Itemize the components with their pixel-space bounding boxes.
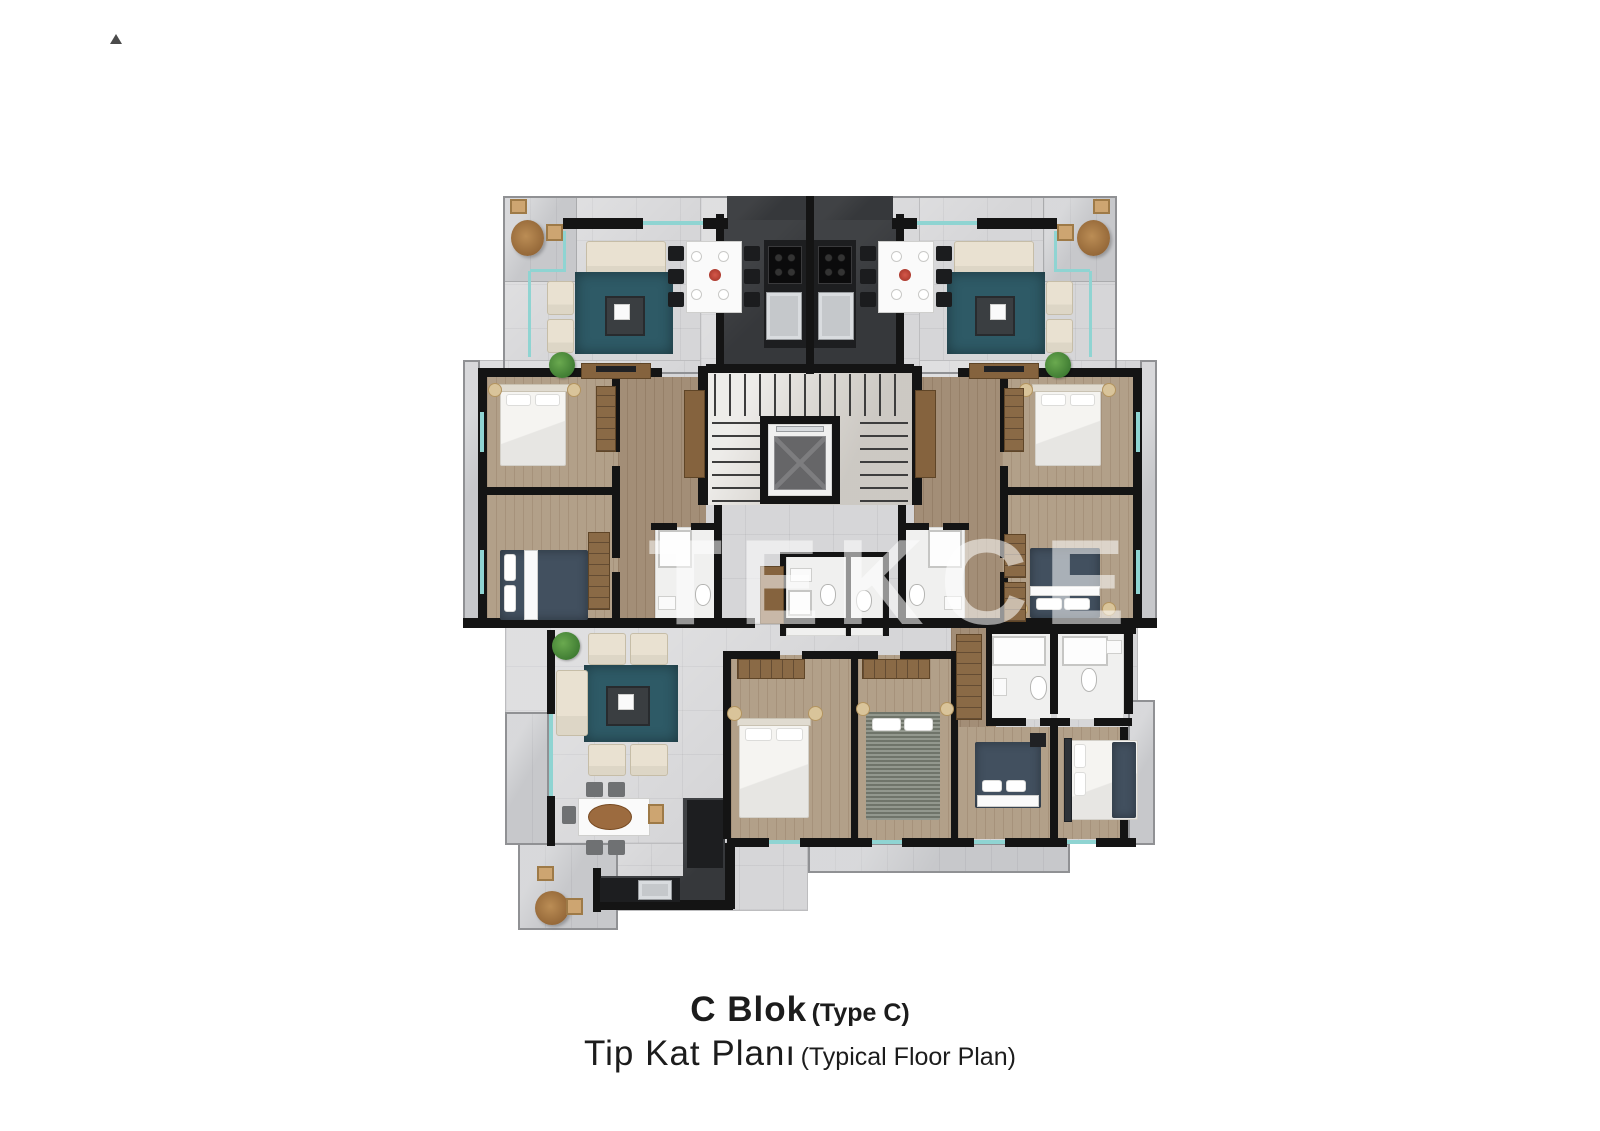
caption-line-2: Tip Kat Planı (Typical Floor Plan) <box>0 1035 1600 1079</box>
wall-bath-bottom-top <box>986 626 1136 634</box>
tv-bedroom-c1 <box>1030 733 1046 747</box>
plant-right <box>1045 352 1071 378</box>
nightstand-b1r-2 <box>1102 383 1116 397</box>
plate-l4 <box>718 289 729 300</box>
pillow-ba-1 <box>745 728 772 741</box>
wardrobe-bedroom2-left <box>588 532 610 610</box>
wall-cbath-mid <box>846 552 851 636</box>
plate-l2 <box>718 251 729 262</box>
dining-chair-l4 <box>744 246 760 261</box>
wall-bed-bottom-1 <box>727 838 769 847</box>
toilet-center-1 <box>820 584 836 606</box>
entry-door-left <box>684 390 705 478</box>
toilet-center-2 <box>856 590 872 612</box>
wardrobe-bedroom1-left <box>596 386 616 452</box>
wall-cbath-right <box>883 552 889 636</box>
window-east-1 <box>1136 412 1140 452</box>
window-west-1 <box>480 412 484 452</box>
terrace-chair-l2 <box>546 224 563 241</box>
nightstand-b1l-2 <box>567 383 581 397</box>
armchair-right-1 <box>1046 281 1073 315</box>
dining-chair-b3 <box>586 840 603 855</box>
sofa-bottom-left <box>556 670 588 736</box>
caption: C Blok (Type C) Tip Kat Planı (Typical F… <box>0 991 1600 1079</box>
armchair-b2 <box>630 633 668 665</box>
toilet-bottom2 <box>1081 668 1097 692</box>
dining-table-bottom-top <box>588 804 632 830</box>
window-bed-c2 <box>1067 840 1096 844</box>
terrace-chair-r2 <box>1057 224 1074 241</box>
centerpiece-left <box>709 269 721 281</box>
wardrobe-bedroom-b <box>862 659 930 679</box>
wall-bed-c-split <box>1050 724 1058 840</box>
parapet-bottom-band <box>808 843 1070 873</box>
plate-l1 <box>691 251 702 262</box>
armchair-b4 <box>630 744 668 776</box>
basin-bottom2 <box>1106 640 1122 654</box>
wall-stair-top <box>706 364 914 373</box>
wall-corridor-left-c <box>612 572 620 618</box>
window-west-2 <box>480 550 484 594</box>
wall-bed-c2-right2 <box>1120 820 1128 840</box>
wall-bath-bottom-3 <box>1094 718 1132 726</box>
pillow-bc1-2 <box>1006 780 1026 792</box>
glass-terrace-r2 <box>1054 269 1090 272</box>
wardrobe-bedroom-a <box>737 659 805 679</box>
terrace-chair-r1 <box>1093 199 1110 214</box>
plate-r2 <box>918 251 929 262</box>
sink-right <box>818 292 854 340</box>
pillow-bb-2 <box>904 718 933 731</box>
dining-chair-l5 <box>744 269 760 284</box>
caption-block-name: C Blok <box>690 990 807 1029</box>
dining-chair-r5 <box>860 269 876 284</box>
stove-left <box>768 246 802 284</box>
wall-bath2-right <box>1124 628 1133 714</box>
wall-bath-bottom-1 <box>986 718 1026 726</box>
terrace-chair-b2 <box>566 898 583 915</box>
wall-bath-left-top1 <box>651 523 677 530</box>
plate-r3 <box>891 289 902 300</box>
shower-left <box>658 530 692 568</box>
headboard-bedroom-c2 <box>1064 738 1072 822</box>
wall-bath-right-top2 <box>904 523 929 530</box>
nightstand-ba-2 <box>808 706 823 721</box>
coffee-table-books-right <box>990 304 1006 320</box>
stair-treads-top <box>714 374 906 416</box>
pillow-b1r-1 <box>1041 394 1066 406</box>
stove-right <box>818 246 852 284</box>
pillow-ba-2 <box>776 728 803 741</box>
terrace-table-right <box>1077 220 1110 256</box>
pillow-b1l-1 <box>506 394 531 406</box>
basin-right <box>944 596 962 610</box>
dining-chair-r6 <box>860 292 876 307</box>
pillow-bb-1 <box>872 718 901 731</box>
basin-center <box>790 568 812 582</box>
wall-center-divider <box>806 196 814 374</box>
toilet-bottom1 <box>1030 676 1047 700</box>
headboard-bedroom-a <box>737 718 811 726</box>
wall-bed-bottom-5 <box>1096 838 1136 847</box>
wardrobe-bedroom2-right-b <box>1004 582 1026 622</box>
caption-plan-translation: (Typical Floor Plan) <box>801 1043 1016 1071</box>
wall-bath-split-top <box>1050 628 1058 714</box>
stair-treads-left <box>712 418 760 502</box>
glass-terrace-l1 <box>563 231 566 271</box>
window-bottom-apt-left <box>549 714 553 796</box>
parapet-left-band <box>505 712 549 845</box>
nightstand-bb-1 <box>856 702 870 716</box>
armchair-right-2 <box>1046 319 1073 353</box>
blanket-bedroom-c2 <box>1112 742 1136 818</box>
basin-left <box>658 596 676 610</box>
floor-plan-page: TEKCE C Blok (Type C) Tip Kat Planı (Typ… <box>0 0 1600 1131</box>
pillow-bc1-1 <box>982 780 1002 792</box>
toilet-left <box>695 584 711 606</box>
dining-chair-l6 <box>744 292 760 307</box>
tv-screen-right <box>984 366 1024 372</box>
wardrobe-bedroom1-right <box>1004 388 1024 452</box>
pillow-bc2-1 <box>1074 744 1086 768</box>
window-top-right <box>917 221 977 225</box>
wall-bed-top-2 <box>802 651 878 659</box>
wall-bottom-apt-left2 <box>547 796 555 846</box>
coffee-table-books-left <box>614 304 630 320</box>
wall-mid-right <box>1002 487 1142 495</box>
wall-top-left-1 <box>563 218 643 229</box>
wall-bed-bottom-2 <box>800 838 872 847</box>
shower-bottom1 <box>992 636 1046 666</box>
wall-bath-left-side <box>714 505 722 620</box>
north-arrow-icon <box>110 34 122 44</box>
wall-kitchen-b-right <box>725 843 735 909</box>
dining-chair-l2 <box>668 269 684 284</box>
pillow-b2l-1 <box>504 554 516 581</box>
plate-l3 <box>691 289 702 300</box>
pillow-b1l-2 <box>535 394 560 406</box>
dining-chair-l3 <box>668 292 684 307</box>
headboard-bedroom1-right <box>1032 384 1104 392</box>
caption-line-1: C Blok (Type C) <box>0 991 1600 1035</box>
wardrobe-bedroom2-right-a <box>1004 534 1026 578</box>
plate-r4 <box>918 289 929 300</box>
glass-terrace-l2 <box>530 269 566 272</box>
window-east-2 <box>1136 550 1140 594</box>
armchair-b3 <box>588 744 626 776</box>
entry-door-bottom <box>760 566 784 624</box>
glass-terrace-r1 <box>1054 231 1057 271</box>
elevator-car <box>774 436 826 490</box>
nightstand-b1l-1 <box>488 383 502 397</box>
wall-mid-left <box>478 487 618 495</box>
kitchen-unit-bottom <box>687 800 723 868</box>
dining-chair-l1 <box>668 246 684 261</box>
wall-bed-top-1 <box>723 651 780 659</box>
dining-chair-b1 <box>586 782 603 797</box>
shower-center <box>788 590 812 616</box>
headboard-bedroom1-left <box>497 384 569 392</box>
wall-corridor-left-b <box>612 466 620 558</box>
dining-chair-b6 <box>648 804 664 824</box>
stair-treads-right <box>860 418 908 502</box>
dining-chair-r2 <box>936 269 952 284</box>
sink-left <box>766 292 802 340</box>
sheet-b2l <box>524 550 538 620</box>
dining-chair-b4 <box>608 840 625 855</box>
wall-bath-left-top2 <box>691 523 716 530</box>
sheet-b2r <box>1030 586 1100 596</box>
dining-chair-b2 <box>608 782 625 797</box>
armchair-left-1 <box>547 281 574 315</box>
wall-bed-a-left <box>723 659 731 839</box>
entry-right <box>814 196 893 220</box>
caption-block-type: (Type C) <box>812 999 910 1027</box>
elevator-door <box>776 426 824 432</box>
dining-chair-r1 <box>936 246 952 261</box>
coffee-table-books-bottom <box>618 694 634 710</box>
plant-bottom <box>552 632 580 660</box>
terrace-table-left <box>511 220 544 256</box>
armchair-b1 <box>588 633 626 665</box>
wall-bath-bottom-2 <box>1040 718 1070 726</box>
pillow-b2l-2 <box>504 585 516 612</box>
entry-left <box>727 196 806 220</box>
dining-chair-b5 <box>562 806 576 824</box>
wardrobe-hall-bottom <box>956 634 982 720</box>
pillow-b1r-2 <box>1070 394 1095 406</box>
wall-bath-right-top1 <box>943 523 969 530</box>
centerpiece-right <box>899 269 911 281</box>
toilet-right <box>909 584 925 606</box>
shower-bottom2 <box>1062 636 1108 666</box>
nightstand-b2r-2 <box>1102 602 1116 616</box>
shower-right <box>928 530 962 568</box>
window-bed-c1 <box>974 840 1005 844</box>
wall-bed-ab <box>851 655 858 839</box>
sheet-bc1 <box>977 795 1039 807</box>
dining-chair-r4 <box>860 246 876 261</box>
caption-plan-name: Tip Kat Planı <box>584 1034 796 1073</box>
entry-door-right <box>915 390 936 478</box>
pillow-b2r-2 <box>1064 598 1090 610</box>
plant-left <box>549 352 575 378</box>
terrace-chair-l1 <box>510 199 527 214</box>
glass-terrace-r3 <box>1089 271 1092 357</box>
terrace-chair-b1 <box>537 866 554 881</box>
basin-bottom1 <box>993 678 1007 696</box>
tv-screen-left <box>596 366 636 372</box>
window-bed-b <box>872 840 902 844</box>
terrace-table-bottom <box>535 891 569 925</box>
armchair-left-2 <box>547 319 574 353</box>
window-top-left <box>643 221 703 225</box>
wall-top-right-1 <box>977 218 1057 229</box>
wall-bed-top-3 <box>900 651 958 659</box>
dining-chair-r3 <box>936 292 952 307</box>
wall-bath-right-side <box>898 505 906 620</box>
sink-bottom <box>638 880 672 900</box>
nightstand-bb-2 <box>940 702 954 716</box>
nightstand-ba-1 <box>727 706 742 721</box>
glass-terrace-l3 <box>528 271 531 357</box>
pillow-bc2-2 <box>1074 772 1086 796</box>
parapet-east <box>1140 360 1157 624</box>
wall-cbath-top <box>780 552 889 557</box>
plate-r1 <box>891 251 902 262</box>
pillow-b2r-1 <box>1036 598 1062 610</box>
wall-bed-bottom-3 <box>902 838 974 847</box>
window-bed-a <box>769 840 800 844</box>
